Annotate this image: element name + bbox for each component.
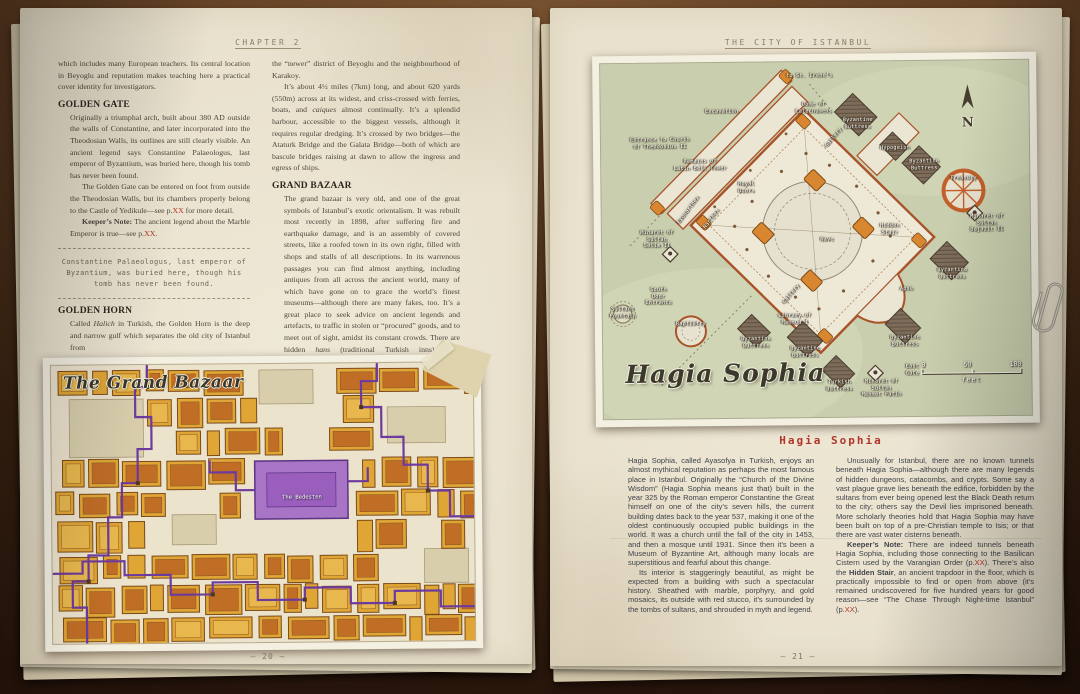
hidden-stair-term: Hidden Stair [849,568,894,577]
map-label: Gallery [782,283,802,305]
keepers-note-label: Keeper’s Note: [82,217,132,226]
page-ref: XX [975,558,985,567]
text-run: ). There’s also the [836,558,1034,576]
keepers-note-label: Keeper’s Note: [847,540,903,549]
right-running-head: THE CITY OF ISTANBUL [588,32,1008,50]
map-label: Byzantine Buttress [790,345,820,358]
stacked-sheet [11,14,535,680]
keepers-note: Keeper’s Note: There are indeed tunnels … [836,540,1034,614]
left-running-head: CHAPTER 2 [58,32,478,50]
page-ref: XX [144,229,155,238]
text-run: (traditional Turkish inns) here, hemisph… [284,345,460,360]
paragraph: The Golden Gate can be entered on foot f… [70,181,250,216]
stacked-sheet [20,11,540,673]
map-label: Treasury [950,175,977,182]
page-ref: XX [172,206,183,215]
typewriter-quote: Constantine Palaeologus, last emperor of… [58,248,250,299]
left-column-2: the “newer” district of Beyoglu and the … [272,58,460,360]
left-page: CHAPTER 2 which includes many European t… [20,8,532,664]
text-run: The ancient legend about the Marble Empe… [70,217,250,238]
grand-bazaar-map-title: The Grand Bazaar [63,372,244,394]
map-label: Nave [820,237,833,244]
map-label: to St. Irene’s [786,73,833,80]
text-run: ). [855,605,860,614]
map-label-layer: to St. Irene’sExcavationDome of Catechum… [600,60,1032,419]
italic-term: hans [315,345,330,354]
text-run: . [155,229,157,238]
map-label: Apse [900,286,913,293]
paragraph: the “newer” district of Beyoglu and the … [272,58,460,81]
right-page-stack: THE CITY OF ISTANBUL [550,8,1062,666]
map-label: Excavation [705,109,738,116]
text-run: for more detail. [184,206,234,215]
right-page: THE CITY OF ISTANBUL [550,8,1062,666]
map-label: Byzantine Buttress [937,267,967,280]
map-label: Dome of Catechumens [795,101,832,114]
scale-tick-100: 100 [1010,360,1022,368]
map-label: Royal Doors [738,181,755,194]
map-label: Hypogeion [880,145,910,152]
map-label: Minaret of Sultan Bejazit II [970,213,1003,233]
paragraph: The grand bazaar is very old, and one of… [284,193,460,360]
map-label: South Door Entrance [645,287,672,307]
paragraph: Called Halich in Turkish, the Golden Hor… [70,318,250,353]
text-run: in Turkish, the Golden Horn is the deep … [70,319,250,351]
map-label: Hidden Stair [880,223,900,236]
left-page-columns: which includes many European teachers. I… [58,58,460,360]
note-column-2: Unusually for Istanbul, there are no kno… [836,456,1034,648]
page-ref: XX [845,605,855,614]
chapter-header: CHAPTER 2 [235,38,301,49]
paragraph: Its interior is staggeringly beautiful, … [628,568,814,614]
right-page-number: – 21 – [588,652,1008,661]
map-label: Minaret of Sultan Mehmet Fatih [862,378,902,398]
left-page-stack: CHAPTER 2 which includes many European t… [20,8,532,664]
italic-term: caiques [312,105,336,114]
grand-bazaar-map: The Grand Bazaar The Bedesten [51,362,475,644]
map-label: East Gate [906,363,919,376]
compass-north: N [956,84,978,130]
paper-crease [610,538,1042,540]
note-column-1: Hagia Sophia, called Ayasofya in Turkish… [628,456,814,648]
paragraph: Unusually for Istanbul, there are no kno… [836,456,1034,540]
map-label: Exonarthex [676,195,701,225]
italic-term: Halich [94,319,115,328]
hagia-sophia-map-drawing [600,60,1032,419]
map-label: Narthex [702,208,721,230]
text-run: , an ancient trapdoor in the floor, whic… [836,568,1034,614]
paragraph: It’s about 4½ miles (7km) long, and abou… [272,81,460,174]
text-run: almost continually. It’s a splendid harb… [272,105,460,172]
map-label: Sultans Fountain [609,306,636,319]
grand-bazaar-map-drawing [51,362,475,644]
map-label: Byzantine Buttress [843,117,873,130]
left-page-number: – 20 – [58,652,478,661]
hagia-sophia-section-heading: Hagia Sophia [628,434,1034,447]
hagia-sophia-map-card: to St. Irene’sExcavationDome of Catechum… [592,52,1040,428]
scale-unit: feet [921,375,1021,384]
paper-scrap [419,338,492,399]
keepers-note: Keeper’s Note: The ancient legend about … [70,216,250,239]
stacked-sheet [541,14,1066,682]
hagia-sophia-map-title: Hagia Sophia [625,358,825,389]
section-heading-golden-gate: GOLDEN GATE [58,100,250,110]
map-label: Library of Mahmud I [778,313,811,326]
paragraph: Hagia Sophia, called Ayasofya in Turkish… [628,456,814,568]
compass-n-label: N [957,115,979,130]
map-label: Byzantine Buttress [741,336,771,349]
text-run: It’s about 4½ miles (7km) long, and abou… [272,82,460,114]
bedesten-label: The Bedesten [282,494,322,500]
paragraph: which includes many European teachers. I… [58,58,250,93]
text-run: The grand bazaar is very old, and one of… [284,194,460,354]
section-heading-grand-bazaar: GRAND BAZAAR [272,181,460,191]
text-run: There are indeed tunnels beneath Hagia S… [836,540,1034,568]
grand-bazaar-map-card: The Grand Bazaar The Bedesten [43,354,484,652]
map-label: Remains of Latin Bell Tower [674,158,727,172]
hagia-sophia-text: Hagia Sophia, called Ayasofya in Turkish… [628,456,1034,648]
scale-tick-50: 50 [963,360,971,368]
text-run: Called [70,319,94,328]
map-label: Minaret of Sultan Selim II [640,230,673,250]
left-column-1: which includes many European teachers. I… [58,58,250,360]
tape-strip [421,339,455,370]
map-label: Byzantine Buttress [909,158,939,171]
compass-arrow-icon [959,84,975,110]
map-label: Byzantine Buttress [890,334,920,347]
paperclip [1026,275,1072,343]
paragraph: Originally a triumphal arch, built about… [70,112,250,182]
map-scale-bar: 0 50 100 feet [921,360,1021,384]
map-label: Gallery [824,127,844,149]
map-label: Turkish Buttress [826,379,853,392]
scale-bar-line [921,368,1021,374]
map-label: Baptistry [676,321,706,328]
text-run: The Golden Gate can be entered on foot f… [70,182,250,214]
desk-background: CHAPTER 2 which includes many European t… [0,0,1080,694]
stacked-sheet [550,11,1070,675]
chapter-header: THE CITY OF ISTANBUL [725,38,871,49]
scale-tick-0: 0 [921,361,925,369]
hagia-sophia-map: to St. Irene’sExcavationDome of Catechum… [600,60,1032,419]
section-heading-golden-horn: GOLDEN HORN [58,306,250,316]
map-label: Entrance to Church of Theodosius II [630,137,690,151]
